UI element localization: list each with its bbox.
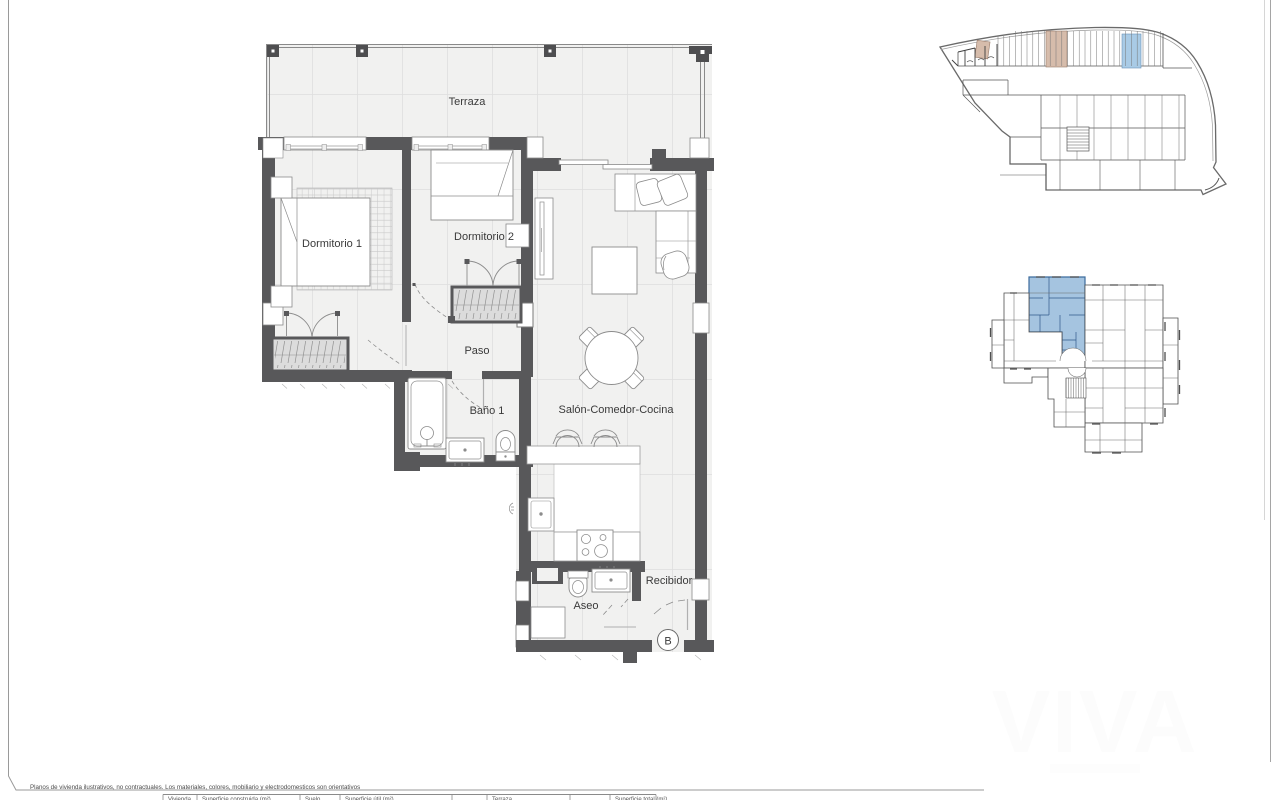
- svg-text:Dormitorio 2: Dormitorio 2: [454, 231, 514, 243]
- svg-text:Paso: Paso: [464, 345, 489, 357]
- svg-text:VIVA: VIVA: [992, 672, 1199, 771]
- svg-text:Salón-Comedor-Cocina: Salón-Comedor-Cocina: [559, 404, 675, 416]
- svg-text:Terraza: Terraza: [449, 96, 487, 108]
- svg-text:Baño 1: Baño 1: [470, 405, 505, 417]
- svg-text:B: B: [664, 636, 671, 648]
- svg-text:Dormitorio 1: Dormitorio 1: [302, 238, 362, 250]
- svg-text:Aseo: Aseo: [573, 600, 598, 612]
- svg-text:Recibidor: Recibidor: [646, 575, 693, 587]
- svg-text:Planos de vivienda ilustrativo: Planos de vivienda ilustrativos, no cont…: [30, 784, 360, 791]
